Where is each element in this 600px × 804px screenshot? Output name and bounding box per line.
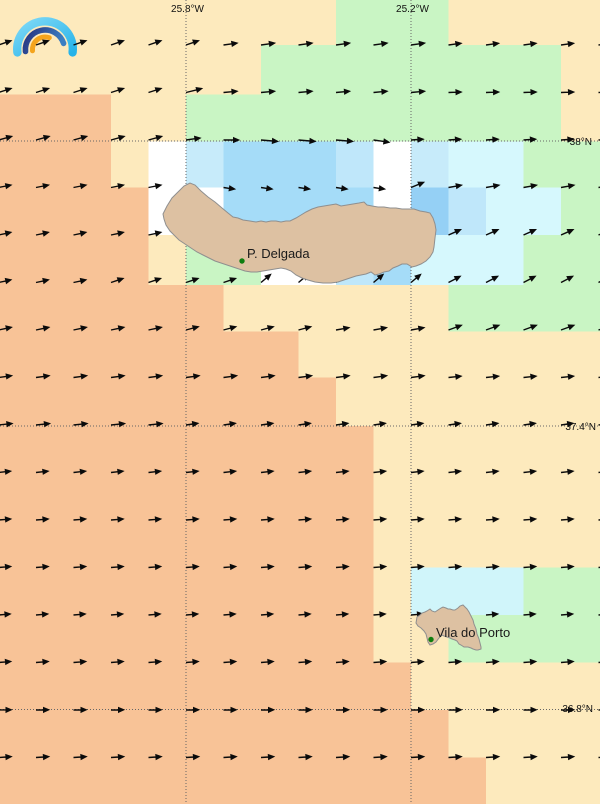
svg-text:25.8°W: 25.8°W (171, 4, 204, 15)
svg-text:36.8°N: 36.8°N (562, 704, 593, 715)
svg-text:Vila do Porto: Vila do Porto (436, 625, 510, 640)
svg-text:25.2°W: 25.2°W (396, 4, 429, 15)
svg-text:38°N: 38°N (570, 137, 592, 148)
svg-text:37.4°N: 37.4°N (565, 422, 596, 433)
svg-text:P. Delgada: P. Delgada (247, 246, 310, 261)
